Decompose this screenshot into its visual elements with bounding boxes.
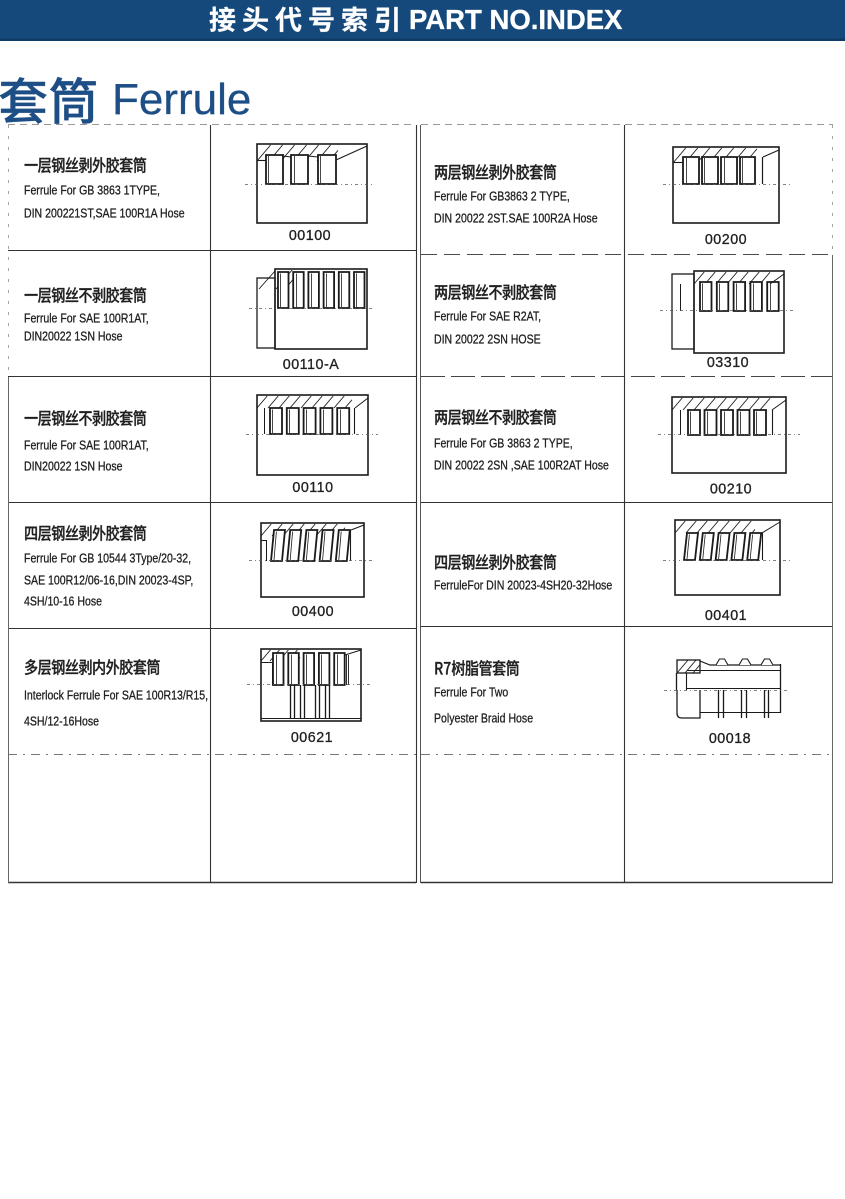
svg-text:Ferrule For GB3863 2 TYPE,: Ferrule For GB3863 2 TYPE, (434, 188, 570, 203)
svg-text:Ferrule For SAE 100R1AT,: Ferrule For SAE 100R1AT, (24, 437, 149, 452)
svg-text:Polyester Braid Hose: Polyester Braid Hose (434, 710, 533, 725)
svg-text:Ferrule For SAE 100R1AT,: Ferrule For SAE 100R1AT, (24, 310, 149, 325)
svg-text:DIN20022 1SN Hose: DIN20022 1SN Hose (24, 328, 123, 343)
svg-text:4SH/12-16Hose: 4SH/12-16Hose (24, 713, 99, 728)
svg-text:00621: 00621 (291, 730, 333, 746)
svg-text:03310: 03310 (707, 355, 749, 371)
svg-text:Interlock Ferrule For SAE 100R: Interlock Ferrule For SAE 100R13/R15, (24, 687, 208, 702)
svg-text:00400: 00400 (292, 604, 334, 620)
svg-text:DIN 20022 2SN ,SAE 100R2AT Hos: DIN 20022 2SN ,SAE 100R2AT Hose (434, 457, 609, 472)
svg-text:DIN 20022 2SN HOSE: DIN 20022 2SN HOSE (434, 331, 541, 346)
svg-text:00401: 00401 (705, 608, 747, 624)
svg-text:Ferrule For GB 3863 1TYPE,: Ferrule For GB 3863 1TYPE, (24, 182, 160, 197)
svg-text:4SH/10-16 Hose: 4SH/10-16 Hose (24, 593, 102, 608)
svg-text:Ferrule For GB 10544 3Type/20-: Ferrule For GB 10544 3Type/20-32, (24, 550, 191, 565)
svg-text:SAE 100R12/06-16,DIN 20023-4SP: SAE 100R12/06-16,DIN 20023-4SP, (24, 572, 193, 587)
svg-text:00018: 00018 (709, 731, 751, 747)
svg-text:FerruleFor DIN 20023-4SH20-32H: FerruleFor DIN 20023-4SH20-32Hose (434, 577, 613, 592)
svg-text:Ferrule For Two: Ferrule For Two (434, 684, 509, 699)
svg-text:00110: 00110 (292, 480, 333, 496)
svg-text:DIN 20022 2ST.SAE 100R2A Hose: DIN 20022 2ST.SAE 100R2A Hose (434, 210, 598, 225)
svg-text:00110-A: 00110-A (283, 357, 340, 373)
svg-text:Ferrule: Ferrule (112, 75, 251, 124)
svg-text:Ferrule For SAE R2AT,: Ferrule For SAE R2AT, (434, 308, 541, 323)
svg-text:DIN 200221ST,SAE 100R1A Hose: DIN 200221ST,SAE 100R1A Hose (24, 205, 185, 220)
svg-text:00200: 00200 (705, 232, 747, 248)
svg-text:PART NO.INDEX: PART NO.INDEX (409, 4, 623, 35)
svg-text:00210: 00210 (710, 482, 752, 498)
svg-text:Ferrule For GB 3863 2 TYPE,: Ferrule For GB 3863 2 TYPE, (434, 435, 573, 450)
svg-text:00100: 00100 (289, 228, 331, 244)
svg-text:DIN20022 1SN Hose: DIN20022 1SN Hose (24, 458, 123, 473)
